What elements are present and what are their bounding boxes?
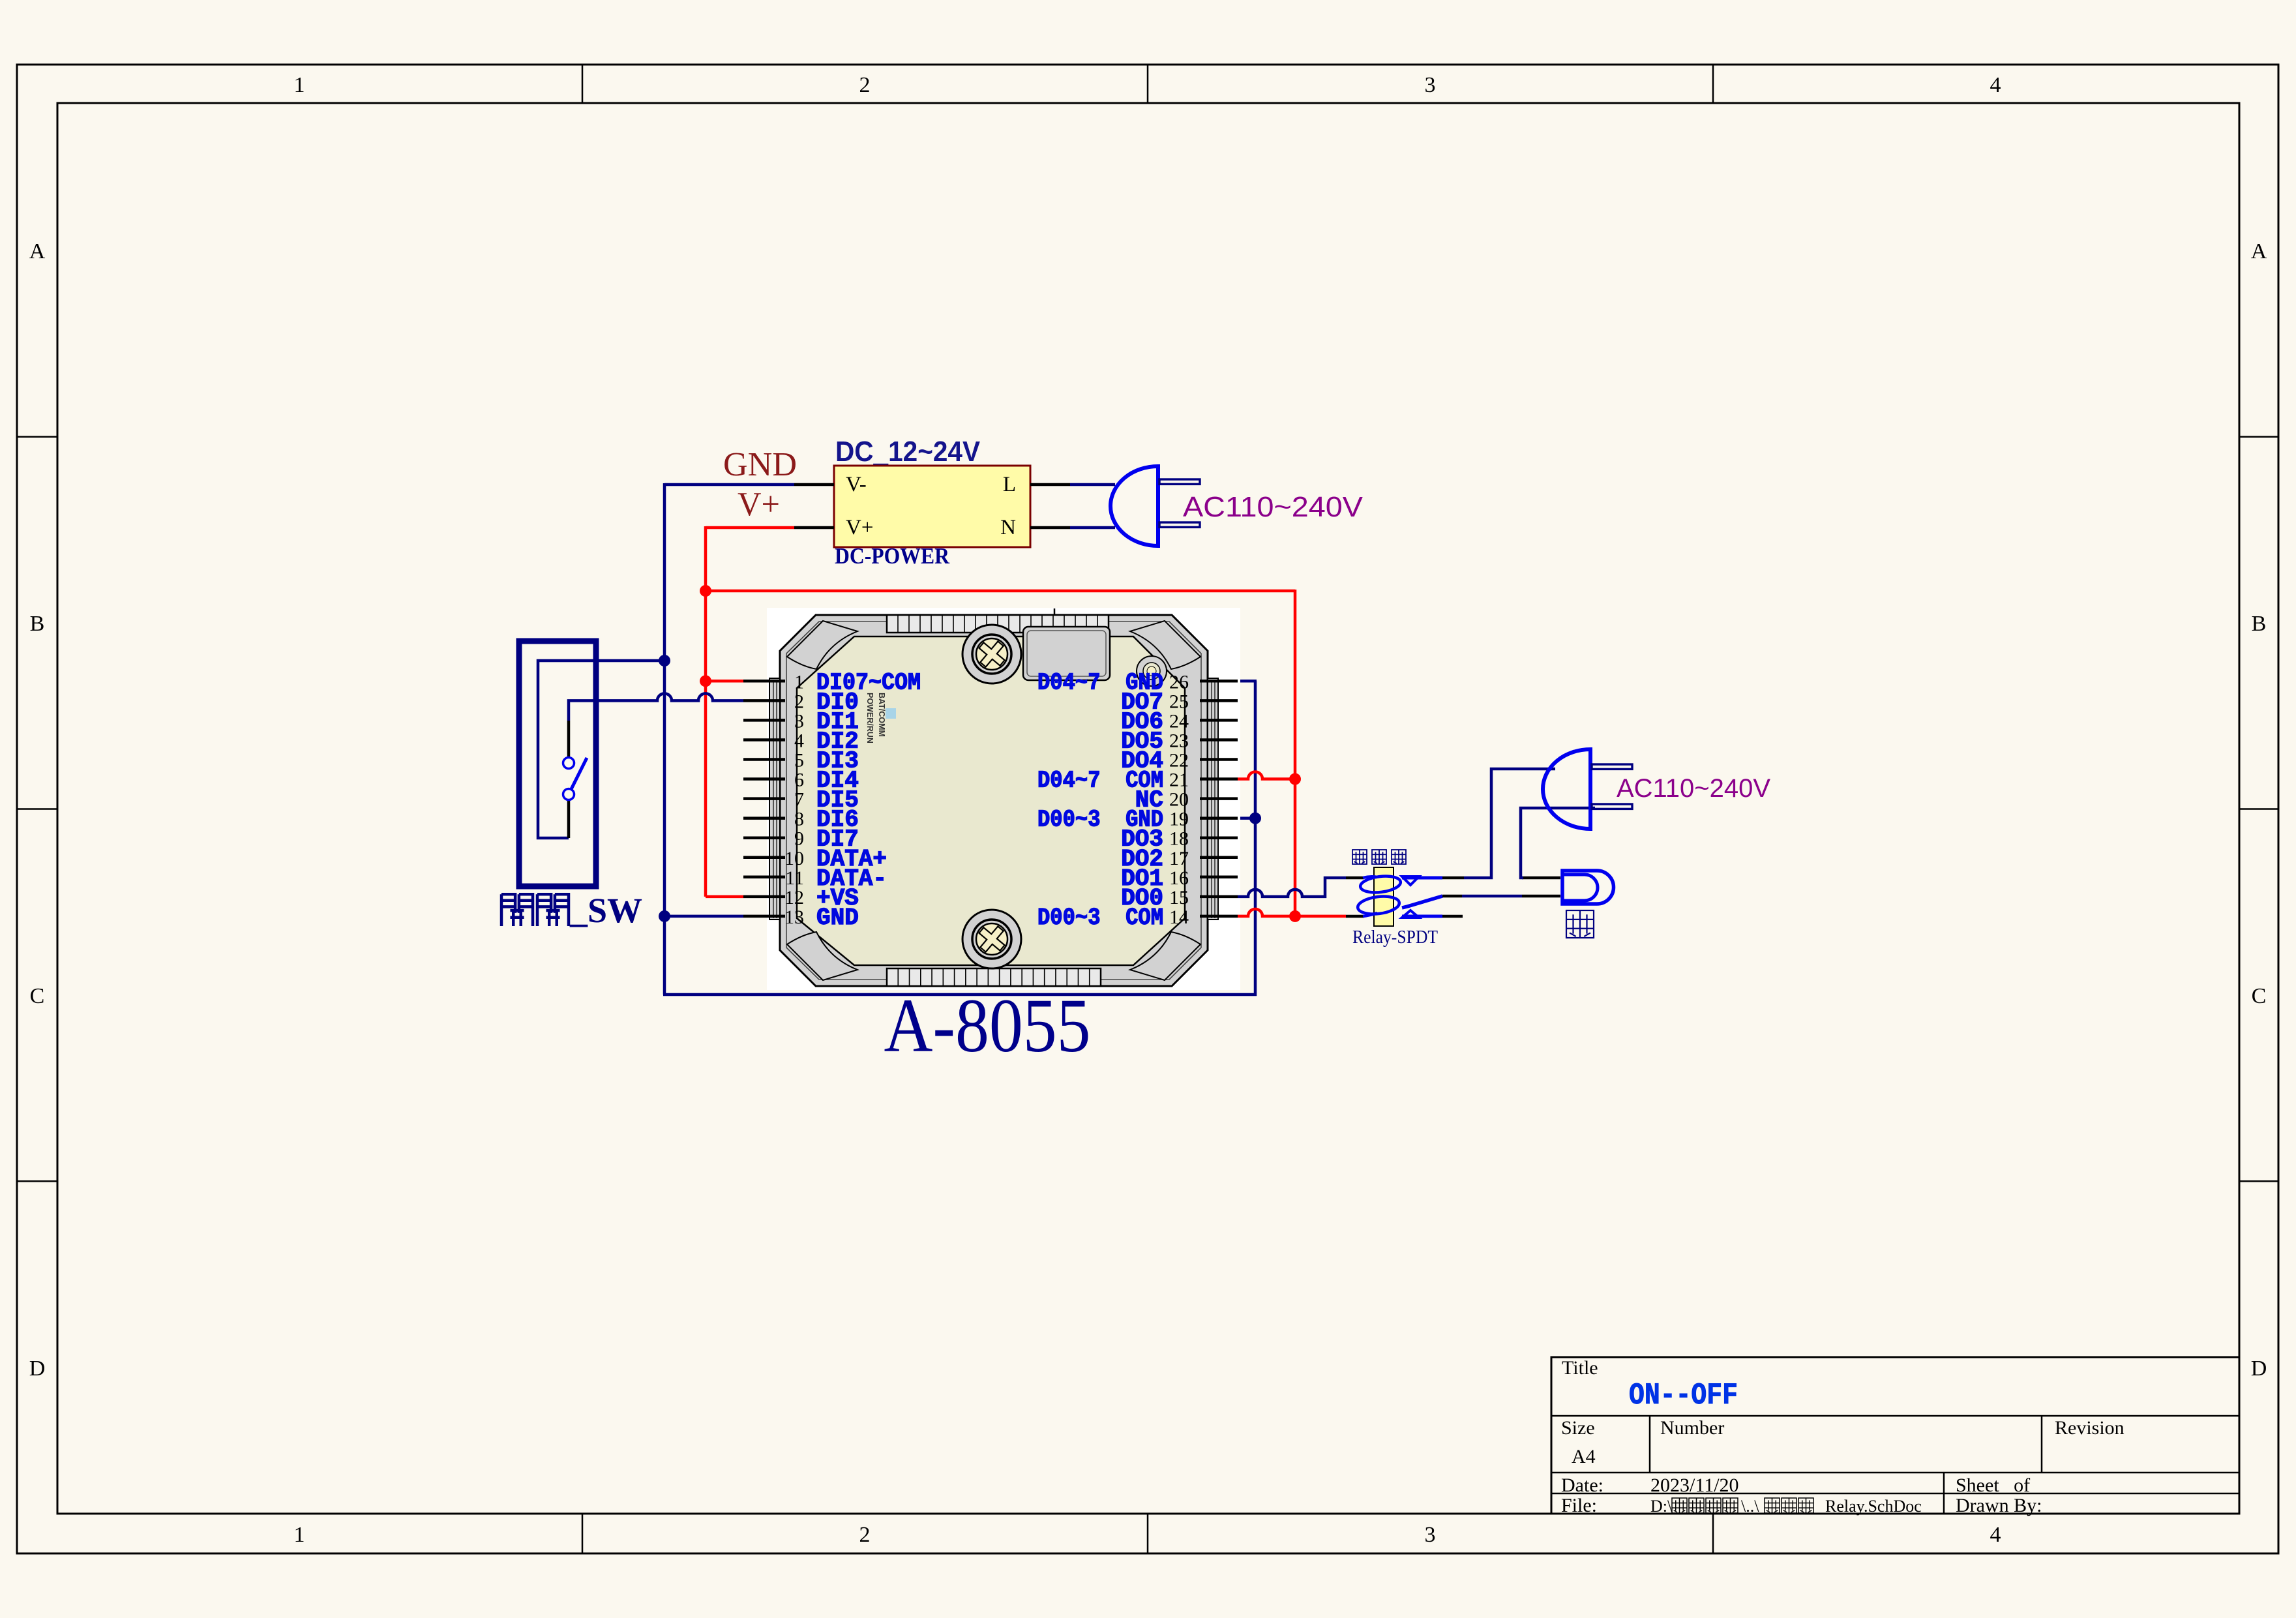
svg-text:9: 9 xyxy=(794,828,804,850)
svg-text:Date:: Date: xyxy=(1561,1475,1603,1496)
svg-text:20: 20 xyxy=(1169,789,1189,811)
svg-text:A: A xyxy=(2251,239,2267,263)
svg-text:ON--OFF: ON--OFF xyxy=(1629,1379,1738,1413)
svg-text:1: 1 xyxy=(294,1523,305,1547)
svg-text:BAT/COMM: BAT/COMM xyxy=(877,693,886,737)
svg-text:13: 13 xyxy=(784,906,804,928)
svg-text:1: 1 xyxy=(294,73,305,97)
svg-text:2: 2 xyxy=(794,691,804,712)
svg-text:2: 2 xyxy=(859,73,871,97)
svg-text:6: 6 xyxy=(794,770,804,791)
svg-text:8: 8 xyxy=(794,809,804,830)
svg-text:2: 2 xyxy=(859,1523,871,1547)
svg-text:V+: V+ xyxy=(846,516,873,539)
svg-text:Sheet of: Sheet of xyxy=(1956,1475,2030,1496)
svg-text:V-: V- xyxy=(846,473,867,496)
svg-text:GND: GND xyxy=(723,446,797,483)
svg-text:L: L xyxy=(1003,473,1016,496)
svg-text:GND: GND xyxy=(816,905,859,931)
svg-text:DC_12~24V: DC_12~24V xyxy=(835,436,981,468)
svg-text:3: 3 xyxy=(794,710,804,732)
svg-text:4: 4 xyxy=(794,730,804,751)
svg-text:C: C xyxy=(30,984,45,1008)
svg-text:B: B xyxy=(2252,612,2267,636)
svg-text:25: 25 xyxy=(1169,691,1189,712)
svg-text:D:\: D:\ xyxy=(1650,1497,1673,1516)
svg-text:19: 19 xyxy=(1169,809,1189,830)
svg-text:10: 10 xyxy=(784,848,804,869)
svg-text:3: 3 xyxy=(1425,73,1436,97)
svg-text:N: N xyxy=(1000,516,1016,539)
svg-text:26: 26 xyxy=(1169,671,1189,693)
svg-text:File:: File: xyxy=(1561,1495,1597,1516)
svg-text:Drawn By:: Drawn By: xyxy=(1956,1495,2042,1516)
svg-text:D00~3 COM: D00~3 COM xyxy=(1037,905,1163,931)
svg-text:3: 3 xyxy=(1425,1523,1436,1547)
svg-text:AC110~240V: AC110~240V xyxy=(1183,491,1364,523)
svg-text:Number: Number xyxy=(1660,1417,1724,1439)
svg-text:Title: Title xyxy=(1562,1357,1598,1379)
svg-text:A4: A4 xyxy=(1572,1446,1596,1467)
svg-text:18: 18 xyxy=(1169,828,1189,850)
svg-text:1: 1 xyxy=(794,671,804,693)
svg-text:15: 15 xyxy=(1169,887,1189,908)
svg-text:11: 11 xyxy=(785,867,804,889)
svg-text:DC-POWER: DC-POWER xyxy=(835,543,950,569)
svg-text:14: 14 xyxy=(1169,906,1189,928)
svg-text:2023/11/20: 2023/11/20 xyxy=(1650,1475,1739,1496)
svg-text:C: C xyxy=(2252,984,2267,1008)
svg-text:A-8055: A-8055 xyxy=(884,983,1091,1068)
svg-text:_Relay.SchDoc: _Relay.SchDoc xyxy=(1816,1497,1922,1516)
svg-text:4: 4 xyxy=(1990,1523,2001,1547)
svg-text:D: D xyxy=(2251,1356,2267,1381)
svg-text:_SW: _SW xyxy=(569,891,642,930)
svg-text:4: 4 xyxy=(1990,73,2001,97)
svg-text:Revision: Revision xyxy=(2055,1417,2125,1439)
svg-text:Size: Size xyxy=(1561,1417,1595,1439)
svg-text:5: 5 xyxy=(794,750,804,772)
svg-text:AC110~240V: AC110~240V xyxy=(1617,774,1770,803)
svg-text:B: B xyxy=(30,612,45,636)
svg-text:\..\: \..\ xyxy=(1741,1497,1759,1516)
svg-text:POWER/RUN: POWER/RUN xyxy=(865,693,874,743)
svg-text:A: A xyxy=(29,239,46,263)
svg-text:Relay-SPDT: Relay-SPDT xyxy=(1352,927,1438,948)
svg-text:12: 12 xyxy=(784,887,804,908)
svg-text:7: 7 xyxy=(794,789,804,811)
svg-text:17: 17 xyxy=(1169,848,1189,869)
svg-text:V+: V+ xyxy=(738,486,780,523)
svg-text:21: 21 xyxy=(1169,770,1189,791)
svg-text:D: D xyxy=(29,1356,46,1381)
svg-text:22: 22 xyxy=(1169,750,1189,772)
svg-text:23: 23 xyxy=(1169,730,1189,751)
svg-text:16: 16 xyxy=(1169,867,1189,889)
svg-text:24: 24 xyxy=(1169,710,1189,732)
